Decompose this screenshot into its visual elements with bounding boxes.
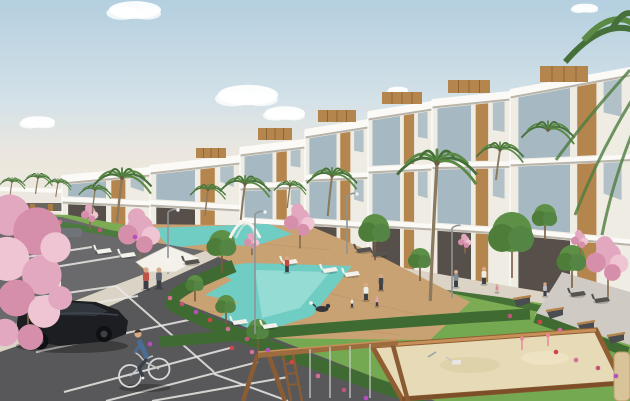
sand-patch <box>521 351 569 365</box>
toy-flamingo-head <box>546 334 550 338</box>
window <box>354 180 363 203</box>
blossom-cluster <box>244 239 251 246</box>
blossom-cluster <box>586 253 606 273</box>
palm-crown <box>434 160 439 165</box>
window <box>354 130 363 153</box>
wood-panel <box>340 132 350 173</box>
cloud-part <box>245 93 278 106</box>
person-torso <box>143 272 149 281</box>
cloud-part <box>132 8 161 19</box>
blossom-cluster <box>604 264 621 281</box>
tree-canopy <box>219 239 236 256</box>
person-torso <box>543 286 547 291</box>
wood-panel <box>276 190 286 220</box>
flower <box>508 314 513 319</box>
tree-canopy <box>508 226 534 252</box>
person-shadow <box>495 291 500 293</box>
person-torso <box>364 287 369 294</box>
person-head <box>156 267 161 272</box>
black-car-rim <box>101 331 108 338</box>
person-legs <box>482 277 486 284</box>
blossom-cluster <box>136 236 153 253</box>
flower <box>148 342 153 347</box>
wood-panel <box>111 179 125 199</box>
flower <box>266 348 271 353</box>
flower <box>180 302 185 307</box>
palm-crown <box>546 128 550 132</box>
palm-crown <box>94 189 96 191</box>
flower <box>245 337 250 342</box>
apartment-module <box>432 80 510 296</box>
flower <box>558 328 563 333</box>
palm-crown <box>207 189 209 191</box>
palm-crown <box>498 148 501 151</box>
flower <box>316 374 321 379</box>
flower <box>596 366 601 371</box>
scene-canvas <box>0 0 630 401</box>
blossom-cluster <box>596 236 614 254</box>
blossom-cluster <box>291 204 304 217</box>
blossom-cluster <box>297 224 309 236</box>
blossom-cluster <box>40 232 70 262</box>
blossom-cluster <box>461 234 467 240</box>
person-legs <box>351 303 353 307</box>
person-legs <box>144 280 149 289</box>
tree-canopy <box>418 255 431 268</box>
person-legs <box>454 280 458 287</box>
blossom-cluster <box>88 215 95 222</box>
blossom-cluster <box>458 239 464 245</box>
flower <box>554 350 559 355</box>
person-head <box>543 282 546 285</box>
flower <box>538 320 543 325</box>
flower <box>250 350 255 355</box>
blossom-cluster <box>118 225 138 245</box>
blossom-cluster <box>578 241 585 248</box>
tree-canopy <box>224 301 236 313</box>
wood-panel <box>476 169 488 226</box>
palm-crown <box>243 182 246 185</box>
toy-flamingo-head <box>520 337 524 341</box>
person-legs <box>364 293 368 300</box>
person-head <box>351 298 353 300</box>
person-torso <box>285 260 290 266</box>
lamp-head <box>460 224 463 227</box>
blossom-cluster <box>284 216 298 230</box>
person-legs <box>376 302 378 306</box>
blossom-cluster <box>128 208 146 226</box>
flower <box>168 296 173 301</box>
palm-crown <box>11 181 13 183</box>
window <box>493 102 505 132</box>
flower <box>342 388 347 393</box>
flower <box>574 358 579 363</box>
flower <box>364 396 369 401</box>
ladder-rung <box>286 373 297 374</box>
wood-panel <box>276 151 286 182</box>
balcony-glass <box>437 169 471 225</box>
balcony-glass <box>372 116 400 166</box>
flower <box>98 228 103 233</box>
toy-digger <box>452 360 461 365</box>
balcony-glass <box>372 173 400 222</box>
person-head <box>496 284 499 287</box>
person-torso <box>156 272 162 280</box>
flower <box>208 318 213 323</box>
palm-crown <box>37 177 39 179</box>
flower <box>290 360 295 365</box>
person-torso <box>454 274 459 281</box>
flower <box>194 310 199 315</box>
balcony-glass <box>309 181 336 220</box>
cyclist-shadow <box>119 384 171 392</box>
blossom-cluster <box>81 211 89 219</box>
flower <box>614 374 619 379</box>
person-head <box>379 274 383 278</box>
cloud-part <box>584 7 598 13</box>
flower <box>226 327 231 332</box>
window <box>291 150 301 168</box>
cloud-part <box>283 112 305 121</box>
blossom-cluster <box>48 286 72 310</box>
window <box>493 168 505 198</box>
palm-crown <box>330 174 333 177</box>
person-head <box>285 256 289 260</box>
tree-canopy <box>193 281 203 291</box>
person-legs <box>157 280 162 288</box>
person-legs <box>379 284 383 290</box>
person-legs <box>543 291 546 296</box>
lamp-head <box>263 210 266 213</box>
lamp-head <box>355 192 358 195</box>
flower <box>230 346 235 351</box>
person-torso <box>496 286 499 290</box>
distant-wood <box>48 204 53 211</box>
palm-crown <box>289 185 291 187</box>
person-legs <box>285 266 289 272</box>
palm-crown <box>57 182 59 184</box>
person-head <box>364 283 368 287</box>
tree-canopy <box>372 224 390 242</box>
blossom-cluster <box>17 324 43 350</box>
tree-canopy <box>543 212 557 226</box>
blossom-cluster <box>571 237 579 245</box>
wood-panel <box>340 180 350 220</box>
render-scene <box>0 0 630 401</box>
window <box>418 112 428 139</box>
window <box>418 171 428 198</box>
person-torso <box>379 278 384 284</box>
blossom-cluster <box>248 233 254 239</box>
person-head <box>454 270 458 274</box>
ladder-rung <box>288 384 299 385</box>
person-torso <box>482 271 487 278</box>
balcony-glass <box>156 170 195 202</box>
dog-head <box>326 304 330 308</box>
blossom-cluster <box>575 230 582 237</box>
cloud-part <box>36 121 55 128</box>
person-head <box>143 267 148 272</box>
person-torso <box>376 298 379 302</box>
lamp-head <box>176 208 179 211</box>
blossom-cluster <box>85 204 92 211</box>
cyclist-shoe <box>142 377 145 380</box>
white-bird <box>309 301 313 305</box>
person-head <box>482 267 486 271</box>
palm-crown <box>120 176 124 180</box>
person-head <box>376 296 379 299</box>
flower <box>133 235 138 240</box>
tree-canopy <box>569 254 586 271</box>
wood-panel <box>404 172 414 222</box>
person-torso <box>351 300 354 304</box>
blossom-cluster <box>464 243 469 248</box>
